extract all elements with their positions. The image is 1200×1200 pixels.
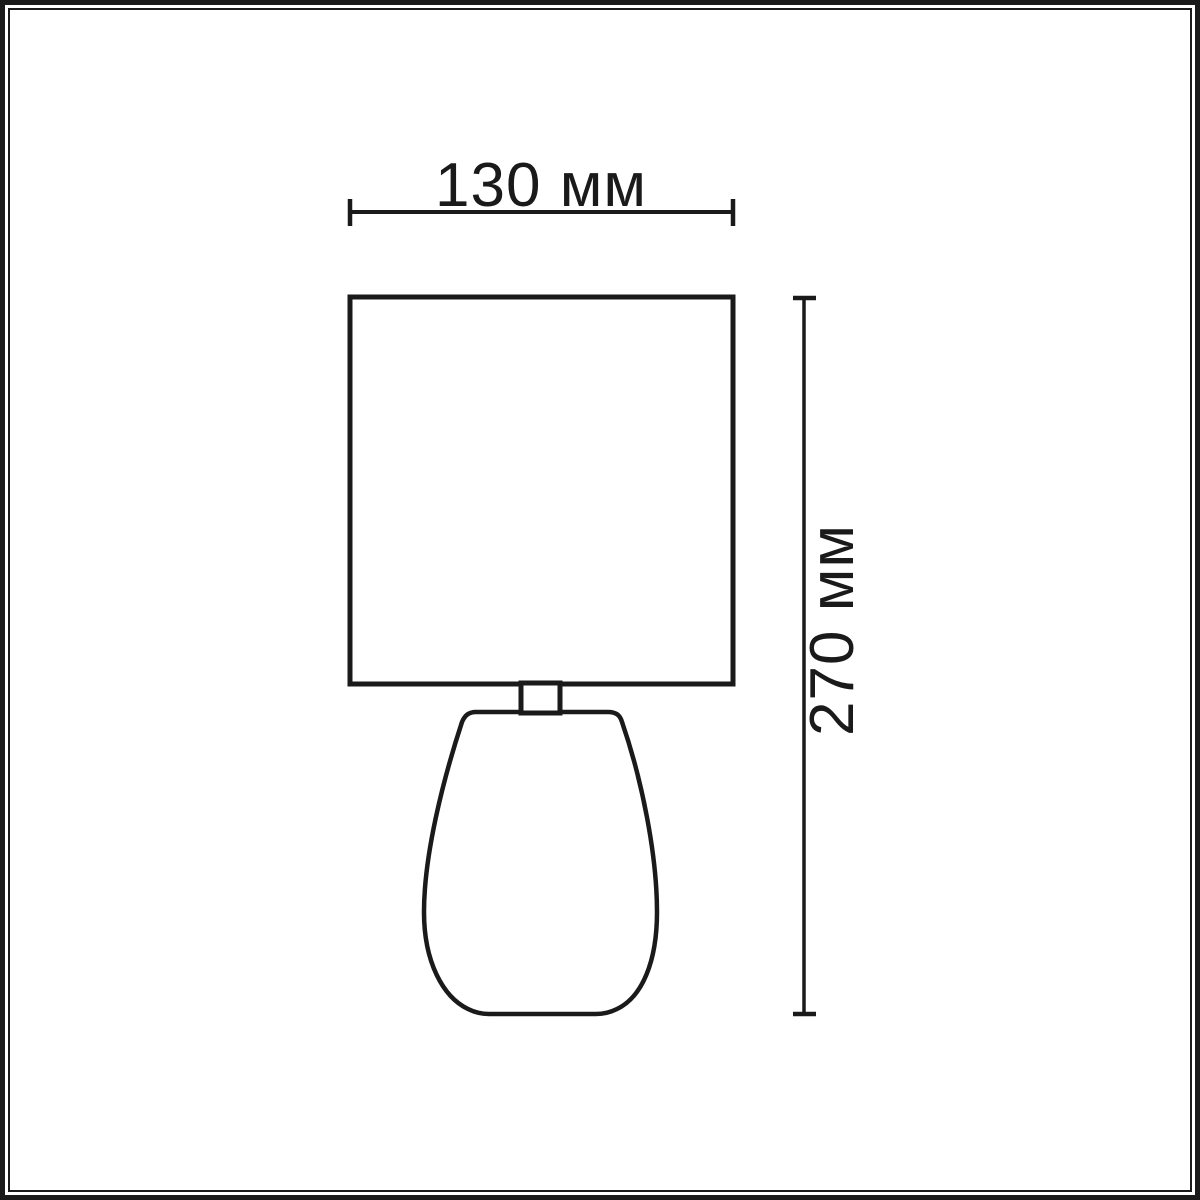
lamp-base-outline	[424, 712, 657, 1014]
width-dimension: 130 мм	[350, 151, 733, 226]
lamp-shade-outline	[350, 297, 733, 684]
diagram-page: 130 мм 270 мм	[0, 0, 1200, 1200]
height-dimension-label: 270 мм	[798, 524, 867, 736]
height-dimension: 270 мм	[793, 298, 867, 1014]
width-dimension-label: 130 мм	[435, 151, 647, 220]
lamp-neck-outline	[521, 683, 560, 713]
lamp-dimension-drawing: 130 мм 270 мм	[0, 0, 1200, 1200]
